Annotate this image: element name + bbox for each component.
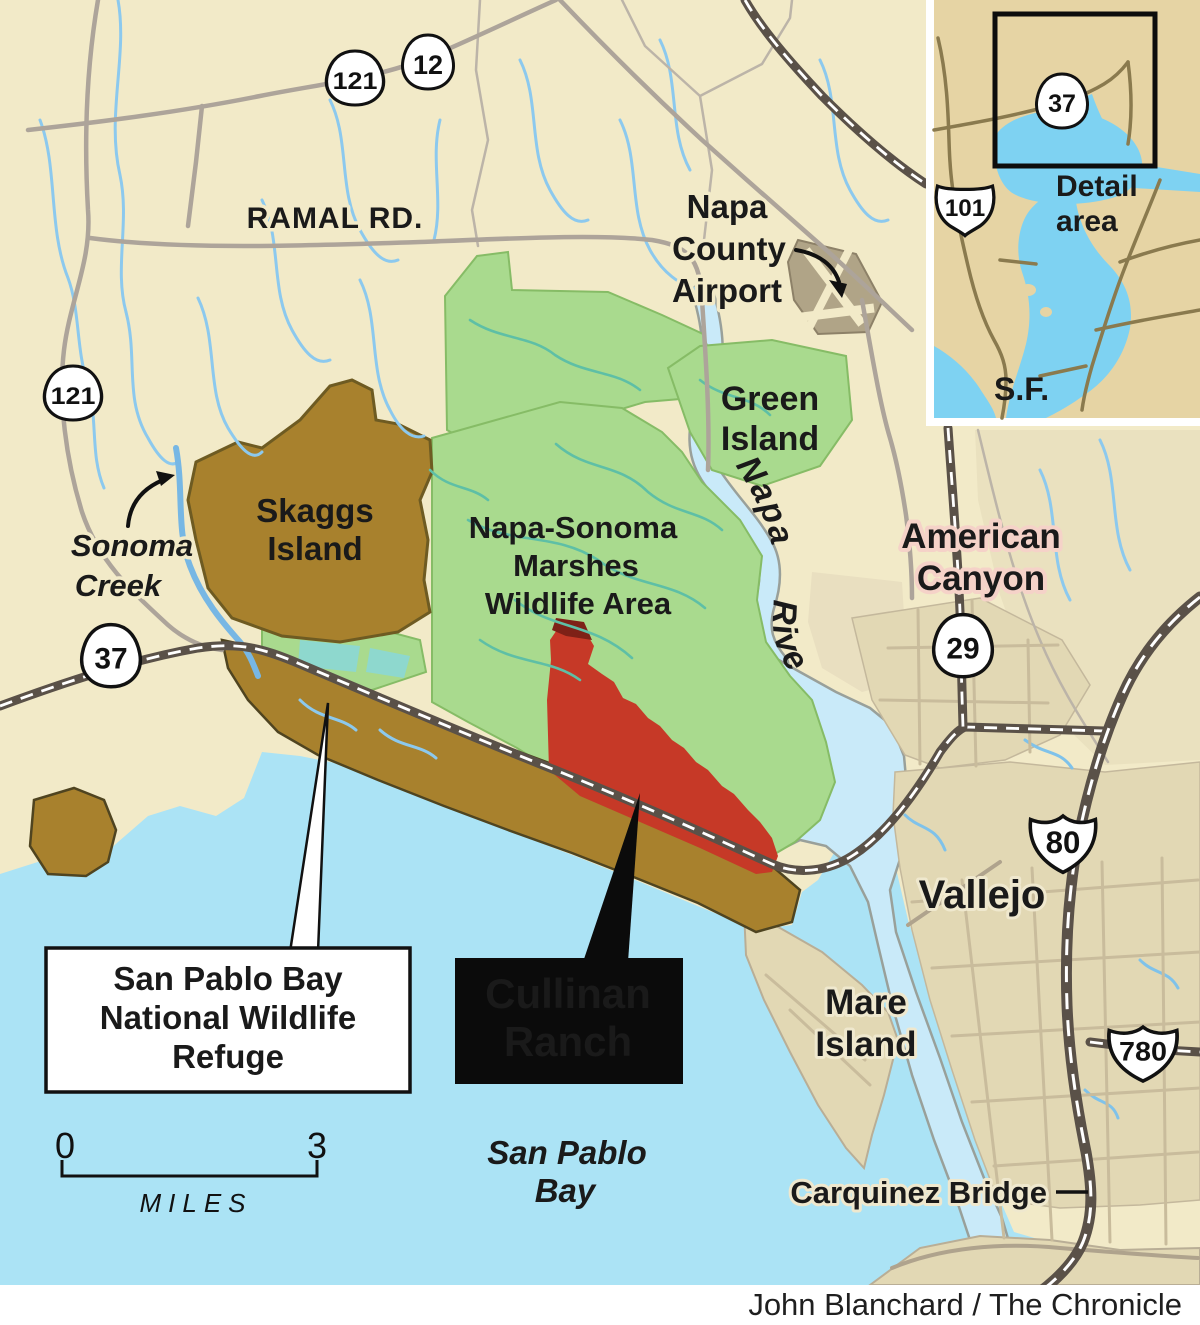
highway-37-inset-shield: 37 — [1037, 74, 1088, 128]
airport-label: Airport — [672, 272, 782, 309]
inset-island — [1040, 307, 1052, 317]
scale-unit: MILES — [139, 1188, 252, 1218]
detail-area-label: area — [1056, 205, 1118, 238]
highway-12-shield: 12 — [403, 35, 454, 89]
highway-121-shield-left: 121 — [44, 366, 101, 420]
refuge-west-blob — [30, 788, 116, 876]
skaggs-island-label: Skaggs — [256, 492, 373, 529]
shield-number: 37 — [94, 642, 127, 675]
sf-label: S.F. — [994, 371, 1049, 407]
shield-number: 37 — [1048, 90, 1076, 118]
sonoma-creek-label: Creek — [75, 568, 163, 603]
highway-121-shield-top: 121 — [326, 51, 383, 105]
inset-island — [1020, 284, 1036, 296]
shield-number: 12 — [413, 50, 443, 80]
refuge-callout-text: San Pablo Bay — [113, 960, 343, 997]
refuge-callout-text: Refuge — [172, 1038, 284, 1075]
cullinan-ranch-map: RAMAL RD. Napa County Airport Green Isla… — [0, 0, 1200, 1325]
american-canyon-label: Canyon — [917, 559, 1045, 598]
cullinan-callout-text: Ranch — [504, 1018, 632, 1065]
shield-number: 101 — [945, 195, 985, 222]
cullinan-callout-text: Cullinan — [485, 970, 651, 1017]
map-graphic: RAMAL RD. Napa County Airport Green Isla… — [0, 0, 1200, 1325]
skaggs-island-label: Island — [267, 530, 362, 567]
san-pablo-bay-label: San Pablo — [487, 1134, 647, 1171]
green-island-label: Green — [721, 380, 819, 418]
scale-start: 0 — [55, 1125, 75, 1166]
san-pablo-bay-label: Bay — [535, 1172, 597, 1209]
marshes-label: Napa-Sonoma — [469, 510, 678, 545]
shield-number: 780 — [1119, 1036, 1167, 1066]
refuge-callout-text: National Wildlife — [100, 999, 356, 1036]
airport-label: Napa — [687, 188, 768, 225]
credit-line: John Blanchard / The Chronicle — [748, 1287, 1182, 1322]
marshes-label: Marshes — [513, 548, 639, 583]
marshes-label: Wildlife Area — [485, 586, 672, 621]
sonoma-creek-label: Sonoma — [71, 528, 193, 563]
highway-37-shield: 37 — [82, 625, 141, 687]
mare-island-label: Island — [815, 1025, 916, 1064]
shield-number: 121 — [333, 68, 378, 94]
shield-number: 121 — [51, 383, 96, 409]
ramal-rd-label: RAMAL RD. — [247, 202, 424, 235]
mare-island-label: Mare — [825, 983, 907, 1022]
street — [1028, 640, 1030, 752]
carquinez-bridge-label: Carquinez Bridge — [790, 1175, 1047, 1210]
highway-29-shield: 29 — [934, 615, 993, 677]
vallejo-label: Vallejo — [919, 873, 1046, 917]
street — [918, 610, 920, 764]
shield-number: 29 — [946, 632, 979, 665]
shield-number: 80 — [1046, 825, 1081, 860]
scale-end: 3 — [307, 1125, 327, 1166]
american-canyon-label: American — [901, 517, 1061, 556]
airport-label: County — [672, 230, 786, 267]
detail-area-label: Detail — [1056, 170, 1138, 203]
green-island-label: Island — [721, 420, 819, 458]
